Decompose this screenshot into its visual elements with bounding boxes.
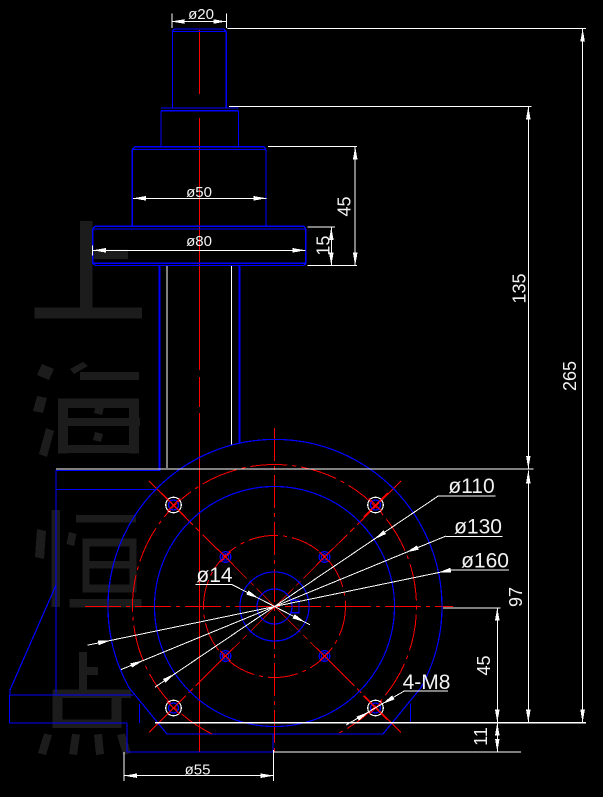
svg-text:97: 97 (506, 587, 526, 607)
svg-text:11: 11 (471, 727, 491, 746)
svg-text:ø160: ø160 (461, 550, 509, 573)
svg-text:45: 45 (474, 655, 494, 675)
svg-text:45: 45 (335, 196, 355, 216)
svg-text:ø14: ø14 (196, 564, 233, 587)
svg-text:ø80: ø80 (186, 233, 212, 250)
svg-text:135: 135 (510, 273, 530, 303)
svg-text:ø20: ø20 (188, 6, 214, 23)
svg-text:265: 265 (560, 361, 580, 391)
svg-text:ø130: ø130 (454, 516, 502, 539)
svg-text:ø110: ø110 (448, 475, 494, 498)
